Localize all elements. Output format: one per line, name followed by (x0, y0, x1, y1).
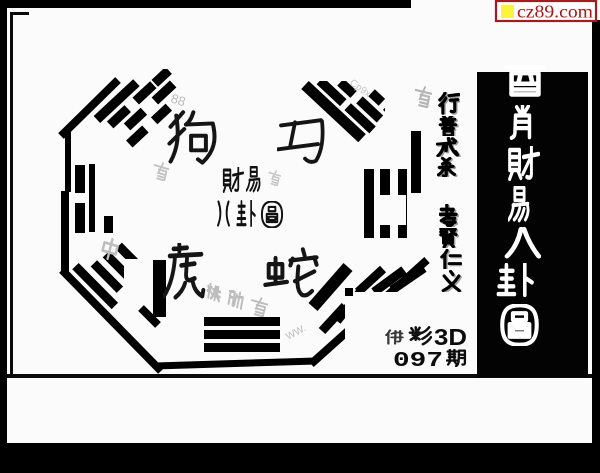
svg-text:3D: 3D (434, 324, 467, 350)
svg-text:097: 097 (393, 350, 443, 373)
svg-text:cz89.com: cz89.com (517, 2, 593, 22)
